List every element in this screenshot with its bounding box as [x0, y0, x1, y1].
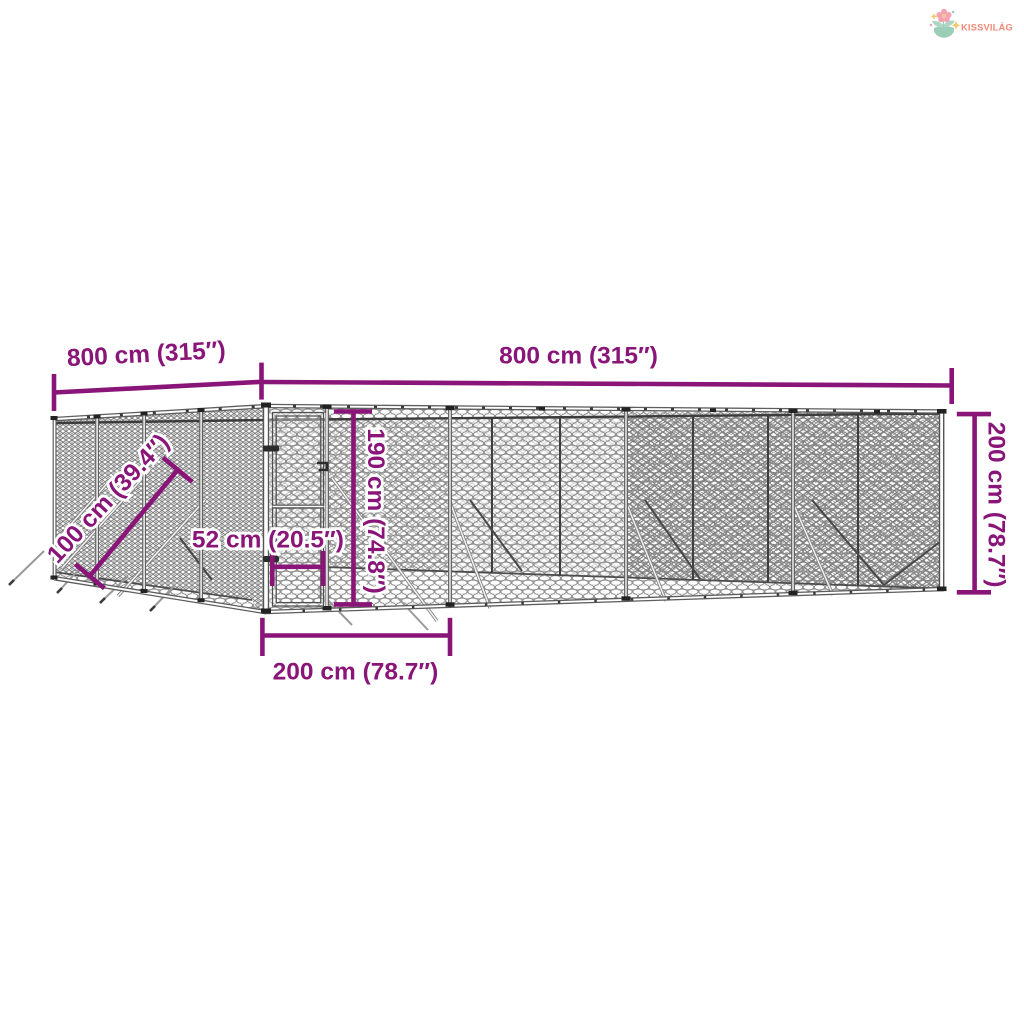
svg-text:800 cm (315″): 800 cm (315″)	[66, 337, 226, 372]
svg-text:KISSVILÁG: KISSVILÁG	[961, 23, 1013, 33]
svg-text:52 cm (20.5″): 52 cm (20.5″)	[192, 527, 344, 554]
svg-text:800 cm (315″): 800 cm (315″)	[499, 343, 658, 370]
svg-text:200 cm (78.7″): 200 cm (78.7″)	[983, 422, 1010, 588]
svg-text:190 cm (74.8″): 190 cm (74.8″)	[362, 428, 389, 594]
svg-text:200 cm (78.7″): 200 cm (78.7″)	[273, 659, 439, 686]
